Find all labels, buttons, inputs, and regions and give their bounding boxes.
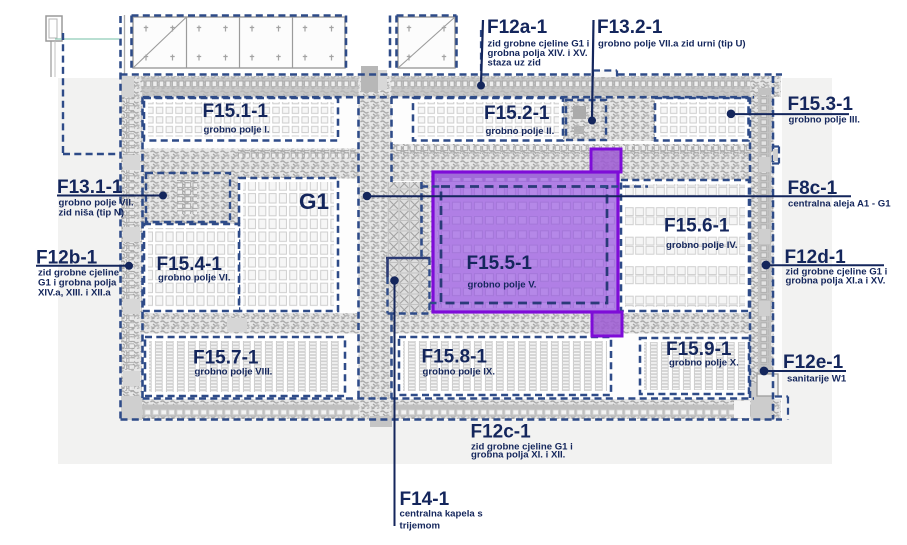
svg-text:G1: G1 (299, 189, 329, 214)
svg-text:F15.6-1: F15.6-1 (664, 216, 730, 237)
svg-text:F12a-1: F12a-1 (487, 17, 548, 38)
svg-text:trijemom: trijemom (400, 521, 441, 532)
svg-text:F15.8-1: F15.8-1 (422, 347, 488, 368)
svg-text:grobno polje III.: grobno polje III. (789, 115, 860, 126)
svg-text:staza uz zid: staza uz zid (488, 57, 541, 68)
svg-text:XIV.a, XIII. i XII.a: XIV.a, XIII. i XII.a (38, 288, 111, 299)
svg-text:grobno polje IX.: grobno polje IX. (423, 367, 495, 378)
svg-text:grobno polje VII.a zid urni (t: grobno polje VII.a zid urni (tip U) (598, 39, 746, 50)
svg-text:F12e-1: F12e-1 (783, 352, 844, 373)
svg-text:zid niša (tip N): zid niša (tip N) (59, 208, 125, 219)
svg-text:F15.2-1: F15.2-1 (484, 103, 550, 124)
svg-text:sanitarije W1: sanitarije W1 (787, 374, 847, 385)
svg-text:F8c-1: F8c-1 (788, 178, 838, 199)
svg-text:F14-1: F14-1 (400, 489, 450, 510)
svg-text:centralna kapela s: centralna kapela s (400, 509, 483, 520)
svg-text:grobno polje V.: grobno polje V. (468, 280, 537, 291)
svg-text:F15.1-1: F15.1-1 (203, 101, 269, 122)
svg-text:grobno polje II.: grobno polje II. (486, 126, 555, 137)
svg-text:F12c-1: F12c-1 (471, 422, 532, 443)
svg-text:centralna aleja A1 - G1: centralna aleja A1 - G1 (788, 199, 891, 210)
svg-text:F15.7-1: F15.7-1 (193, 348, 259, 369)
svg-text:grobno polje X.: grobno polje X. (669, 358, 739, 369)
svg-text:F12b-1: F12b-1 (36, 248, 98, 269)
svg-text:grobna polja XI.a i XV.: grobna polja XI.a i XV. (786, 275, 886, 286)
svg-text:grobno polje VIII.: grobno polje VIII. (195, 367, 273, 378)
svg-text:F15.5-1: F15.5-1 (467, 253, 533, 274)
svg-text:F15.3-1: F15.3-1 (788, 94, 854, 115)
svg-text:F13.1-1: F13.1-1 (57, 177, 123, 198)
svg-text:grobno polje IV.: grobno polje IV. (666, 240, 738, 251)
svg-text:F13.2-1: F13.2-1 (597, 17, 663, 38)
svg-text:grobno polje VI.: grobno polje VI. (158, 272, 230, 283)
svg-text:grobna polja XI. i XII.: grobna polja XI. i XII. (471, 450, 565, 461)
svg-text:F12d-1: F12d-1 (785, 247, 847, 268)
svg-text:grobno polje I.: grobno polje I. (204, 125, 270, 136)
